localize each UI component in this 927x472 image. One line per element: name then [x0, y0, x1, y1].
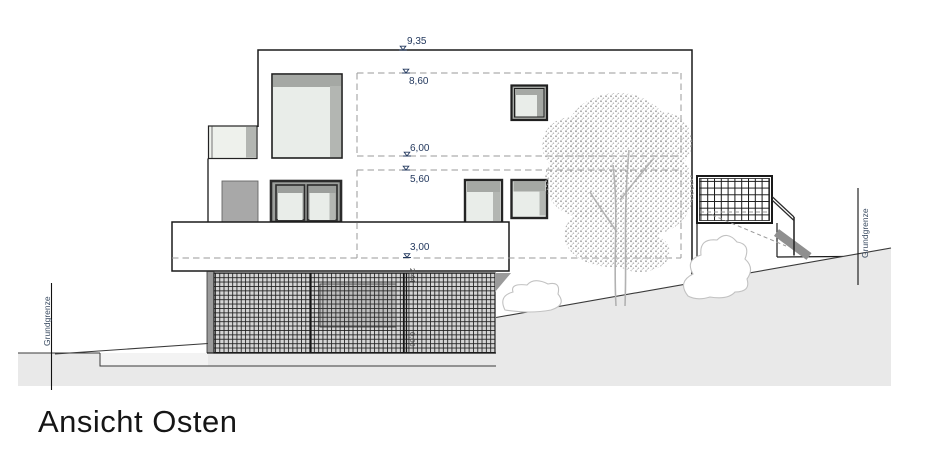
door-side-strip	[330, 193, 336, 220]
parapet-strip	[246, 127, 257, 158]
level-label: 5,60	[410, 174, 430, 185]
level-mark-935: 9,35	[399, 36, 427, 50]
window-middle-right	[512, 180, 548, 218]
door-top-band	[467, 182, 500, 193]
door-panel-gray	[222, 181, 258, 222]
window-side-strip	[540, 191, 546, 216]
level-label: 2,44	[408, 268, 417, 283]
basement-left-wall	[207, 272, 214, 354]
stair-flight	[777, 233, 810, 257]
window-top-band	[273, 75, 341, 87]
basement	[207, 272, 511, 354]
grade-slope-left	[55, 344, 208, 355]
window-upper-large	[272, 74, 342, 158]
terrain-step-band	[100, 353, 208, 366]
door-side-strip	[493, 192, 500, 221]
double-glass-door	[271, 181, 341, 222]
window-top-band	[514, 182, 546, 192]
bush-right	[684, 235, 751, 298]
elevation-drawing: Grundgrenze Grundgrenze 9,35 8,60 6,00 5…	[0, 0, 927, 472]
level-mark-244: 2,44	[408, 268, 417, 283]
upper-left-parapet	[209, 126, 258, 159]
door-glass-left	[278, 193, 303, 220]
window-upper-right	[512, 86, 548, 121]
drawing-title: Ansicht Osten	[38, 404, 237, 439]
door-middle-right	[465, 180, 502, 223]
level-label: 8,60	[409, 76, 429, 87]
elevation-drawing-sheet: Grundgrenze Grundgrenze 9,35 8,60 6,00 5…	[0, 0, 927, 472]
window-glass	[516, 95, 537, 117]
boundary-label: Grundgrenze	[860, 208, 870, 258]
level-label: 0,00	[408, 332, 417, 347]
trellis-grid	[700, 179, 770, 221]
level-label: 9,35	[407, 36, 427, 47]
level-label: 3,00	[410, 242, 430, 253]
window-side-strip	[330, 86, 341, 157]
stair-handrail	[772, 197, 794, 221]
level-label: 6,00	[410, 143, 430, 154]
trellis-railing	[697, 176, 772, 223]
boundary-label: Grundgrenze	[42, 296, 52, 346]
level-mark-000: 0,00	[408, 332, 417, 347]
balcony-parapet	[172, 222, 509, 271]
door-glass-right	[310, 193, 330, 220]
basement-garage-door	[320, 284, 396, 327]
